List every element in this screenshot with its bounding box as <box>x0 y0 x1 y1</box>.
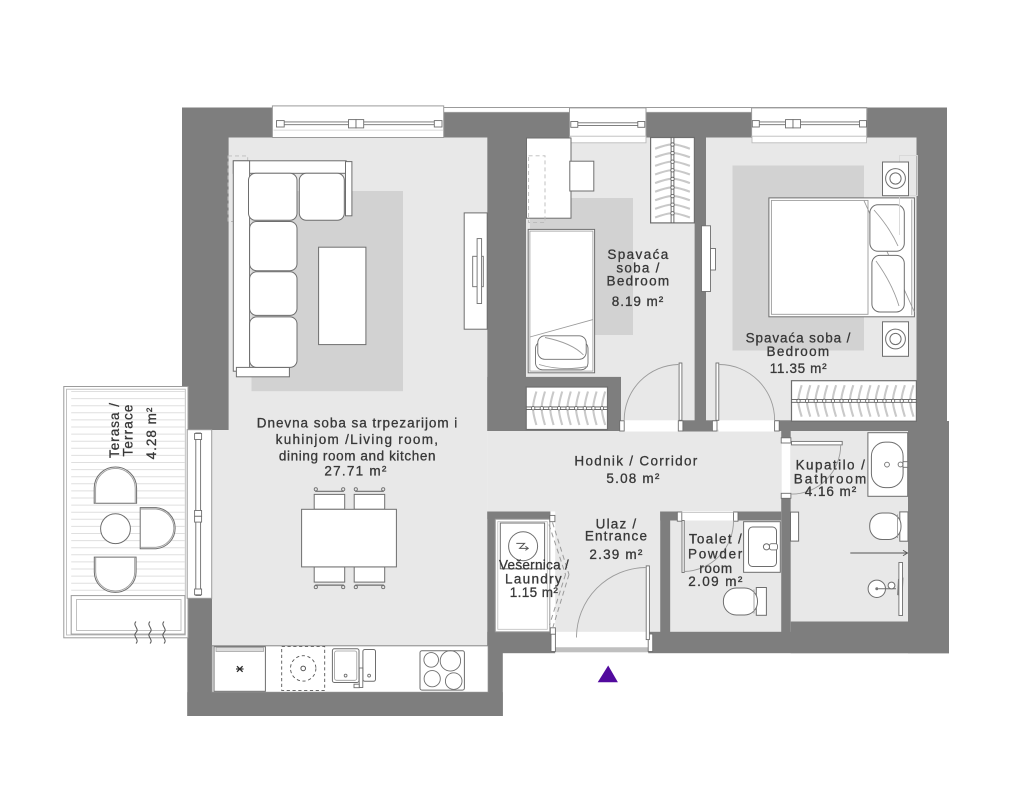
svg-text:4.16 m²: 4.16 m² <box>805 484 857 499</box>
svg-text:27.71 m²: 27.71 m² <box>324 463 387 478</box>
svg-text:5.08 m²: 5.08 m² <box>606 471 660 486</box>
svg-text:Bedroom: Bedroom <box>607 274 671 289</box>
svg-text:Dnevna soba sa trpezarijom i: Dnevna soba sa trpezarijom i <box>257 415 458 430</box>
svg-text:Laundry: Laundry <box>505 571 563 586</box>
svg-text:4.28 m²: 4.28 m² <box>144 407 159 460</box>
svg-text:Entrance: Entrance <box>585 528 648 543</box>
svg-text:2.39 m²: 2.39 m² <box>589 547 643 562</box>
svg-text:1.15 m²: 1.15 m² <box>510 585 559 600</box>
svg-text:dining room and kitchen: dining room and kitchen <box>279 448 436 463</box>
svg-text:Kupatilo /: Kupatilo / <box>796 457 867 472</box>
svg-text:11.35 m²: 11.35 m² <box>770 361 827 376</box>
svg-text:Bedroom: Bedroom <box>767 344 831 359</box>
svg-text:Powder: Powder <box>688 547 744 562</box>
svg-text:Vešernica /: Vešernica / <box>499 558 569 573</box>
svg-text:2.09 m²: 2.09 m² <box>688 574 744 589</box>
svg-text:kuhinjom /Living room,: kuhinjom /Living room, <box>276 432 440 447</box>
svg-text:Terrace: Terrace <box>121 403 136 456</box>
svg-text:Toalet /: Toalet / <box>689 532 743 547</box>
svg-text:8.19 m²: 8.19 m² <box>612 294 664 309</box>
svg-text:Hodnik / Corridor: Hodnik / Corridor <box>574 453 698 468</box>
